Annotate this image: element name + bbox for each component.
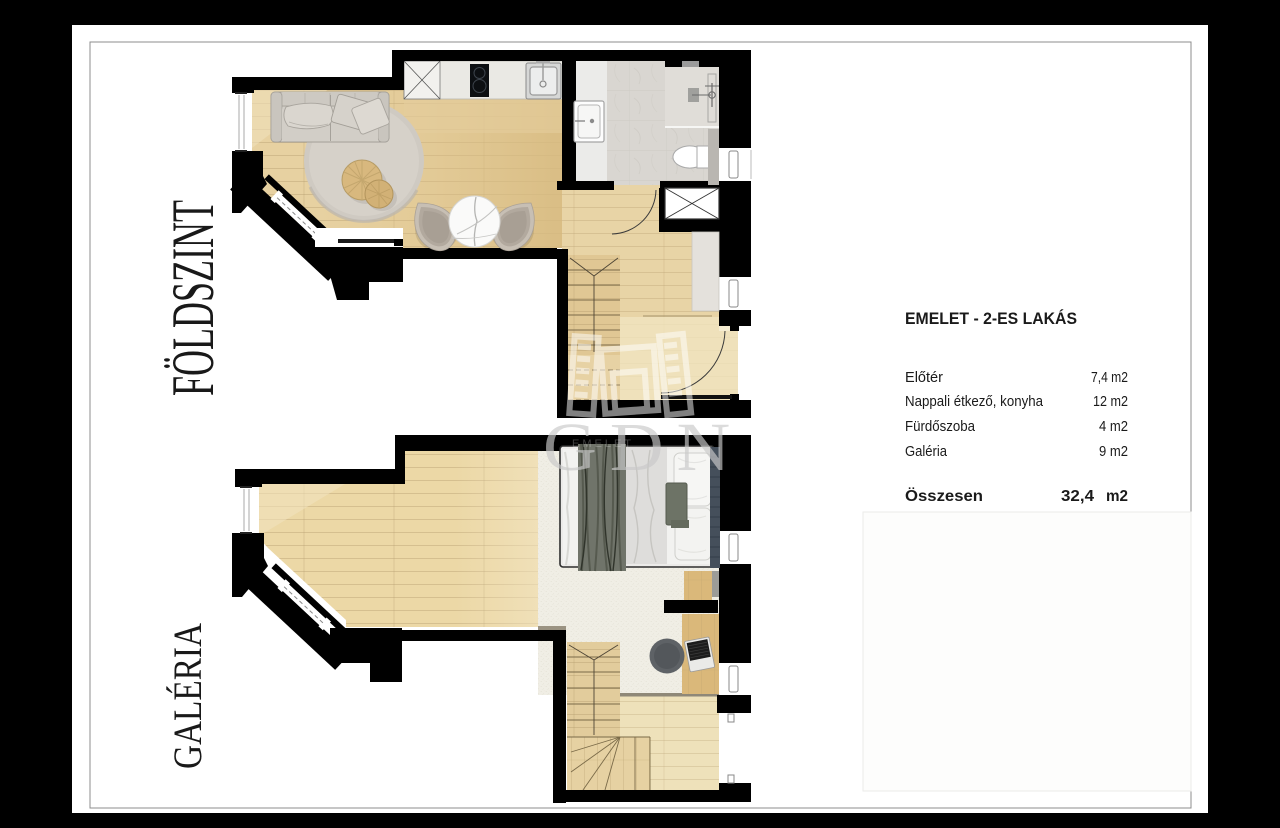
svg-text:EMELET - 2-ES LAKÁS: EMELET - 2-ES LAKÁS (905, 309, 1077, 328)
svg-text:12 m2: 12 m2 (1093, 394, 1128, 410)
svg-text:4 m2: 4 m2 (1099, 419, 1128, 435)
svg-text:GALÉRIA: GALÉRIA (165, 623, 210, 769)
svg-text:Fürdőszoba: Fürdőszoba (905, 419, 976, 435)
svg-text:Előtér: Előtér (905, 370, 943, 386)
svg-text:7,4 m2: 7,4 m2 (1091, 370, 1128, 386)
svg-text:32,4: 32,4 (1061, 488, 1094, 505)
svg-text:m2: m2 (1106, 488, 1128, 505)
svg-text:9 m2: 9 m2 (1099, 444, 1128, 460)
svg-text:Nappali étkező, konyha: Nappali étkező, konyha (905, 394, 1044, 410)
svg-text:Galéria: Galéria (905, 444, 948, 460)
svg-text:FÖLDSZINT: FÖLDSZINT (160, 200, 226, 396)
svg-text:EMELET: EMELET (572, 438, 634, 450)
svg-text:Összesen: Összesen (905, 488, 983, 505)
